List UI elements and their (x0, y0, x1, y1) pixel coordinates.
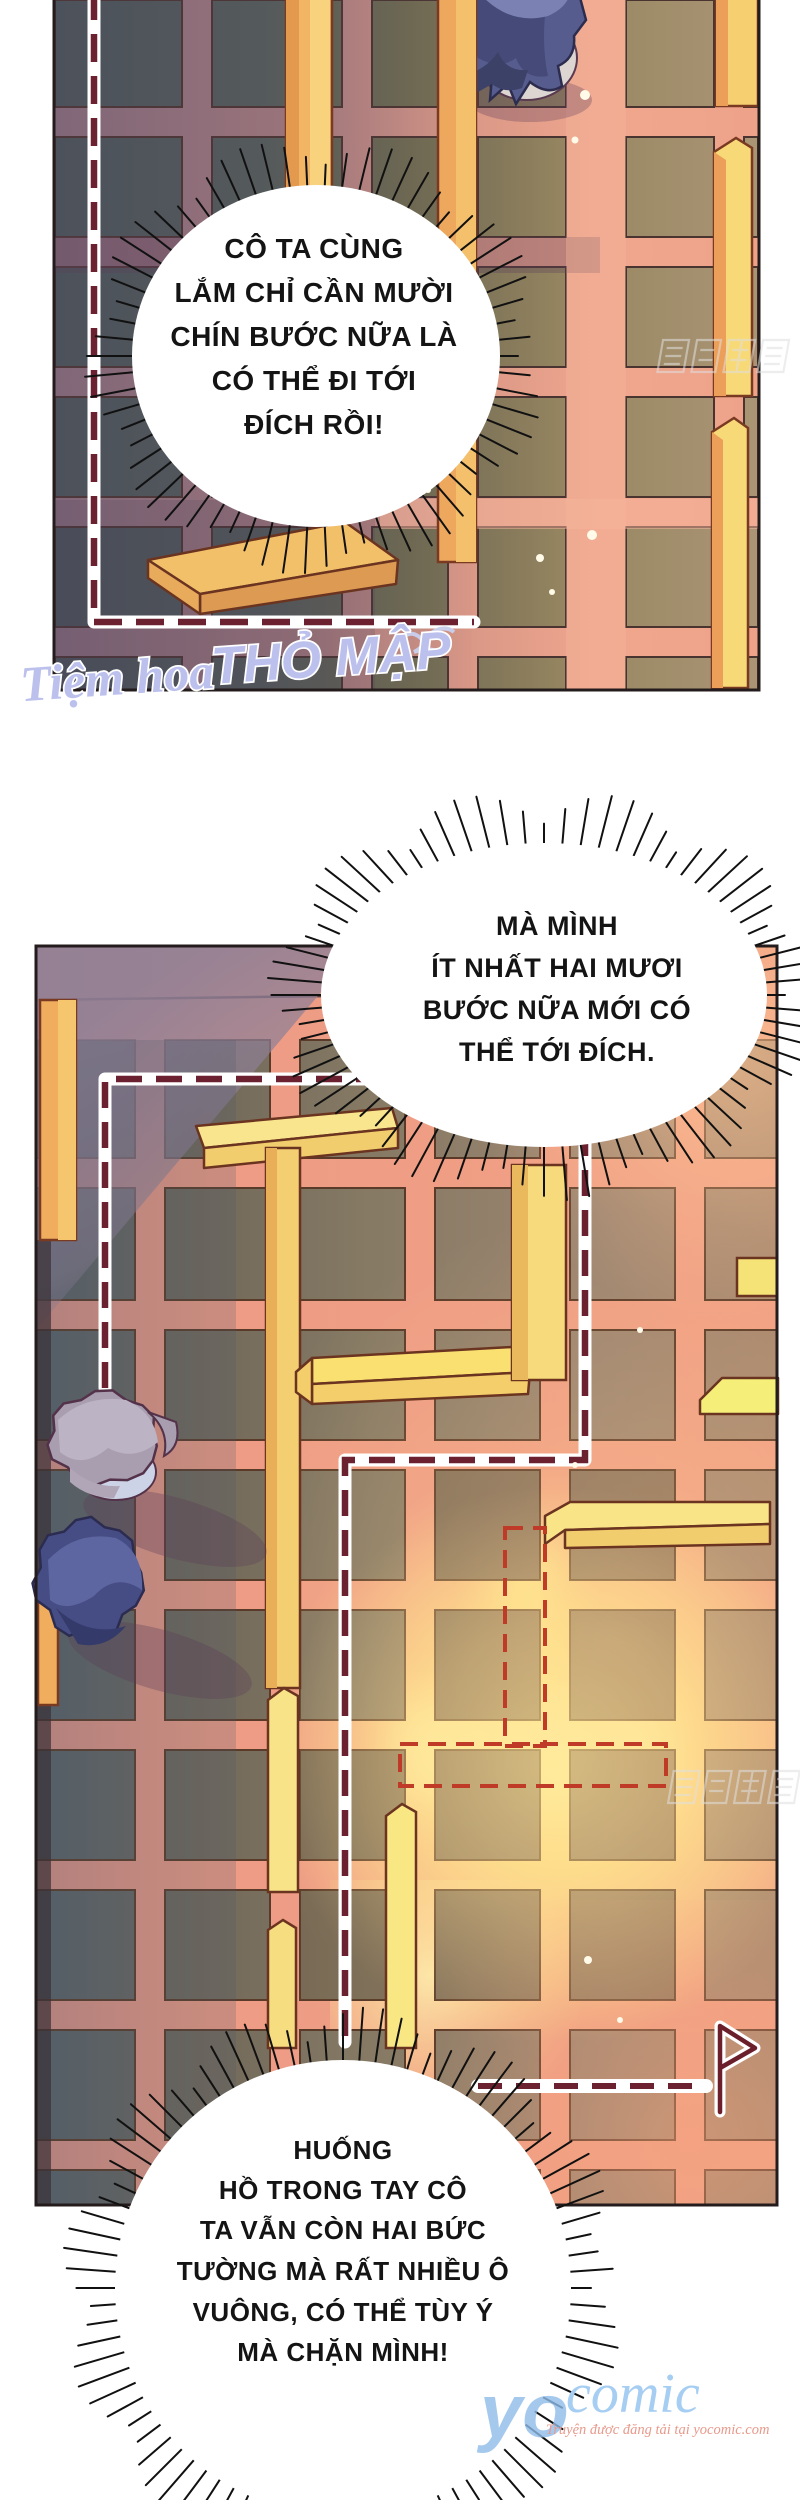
svg-text:CHÍN BƯỚC NỮA LÀ: CHÍN BƯỚC NỮA LÀ (170, 321, 457, 352)
svg-text:MÀ CHẶN MÌNH!: MÀ CHẶN MÌNH! (237, 2337, 449, 2367)
svg-text:TA VẪN CÒN HAI BỨC: TA VẪN CÒN HAI BỨC (200, 2215, 486, 2245)
svg-text:CÔ TA CÙNG: CÔ TA CÙNG (224, 232, 403, 264)
svg-text:HUỐNG: HUỐNG (293, 2135, 392, 2165)
svg-text:VUÔNG, CÓ THỂ TÙY Ý: VUÔNG, CÓ THỂ TÙY Ý (193, 2297, 494, 2327)
svg-text:THỂ TỚI ĐÍCH.: THỂ TỚI ĐÍCH. (459, 1036, 655, 1067)
svg-text:HỒ TRONG TAY CÔ: HỒ TRONG TAY CÔ (219, 2175, 467, 2205)
svg-text:ÍT NHẤT HAI MƯƠI: ÍT NHẤT HAI MƯƠI (431, 952, 682, 983)
svg-text:MÀ MÌNH: MÀ MÌNH (496, 910, 618, 941)
svg-text:LẮM CHỈ CẦN MƯỜI: LẮM CHỈ CẦN MƯỜI (174, 276, 453, 308)
svg-text:comic: comic (566, 2363, 700, 2425)
svg-text:TƯỜNG MÀ RẤT NHIỀU Ô: TƯỜNG MÀ RẤT NHIỀU Ô (177, 2256, 510, 2286)
svg-text:ĐÍCH RỒI!: ĐÍCH RỒI! (244, 409, 384, 440)
svg-text:yo: yo (476, 2369, 569, 2454)
svg-text:Truyện được đăng tải tại yocom: Truyện được đăng tải tại yocomic.com (546, 2422, 769, 2438)
svg-text:BƯỚC NỮA MỚI CÓ: BƯỚC NỮA MỚI CÓ (423, 994, 691, 1025)
svg-text:CÓ THỂ ĐI TỚI: CÓ THỂ ĐI TỚI (212, 365, 417, 396)
